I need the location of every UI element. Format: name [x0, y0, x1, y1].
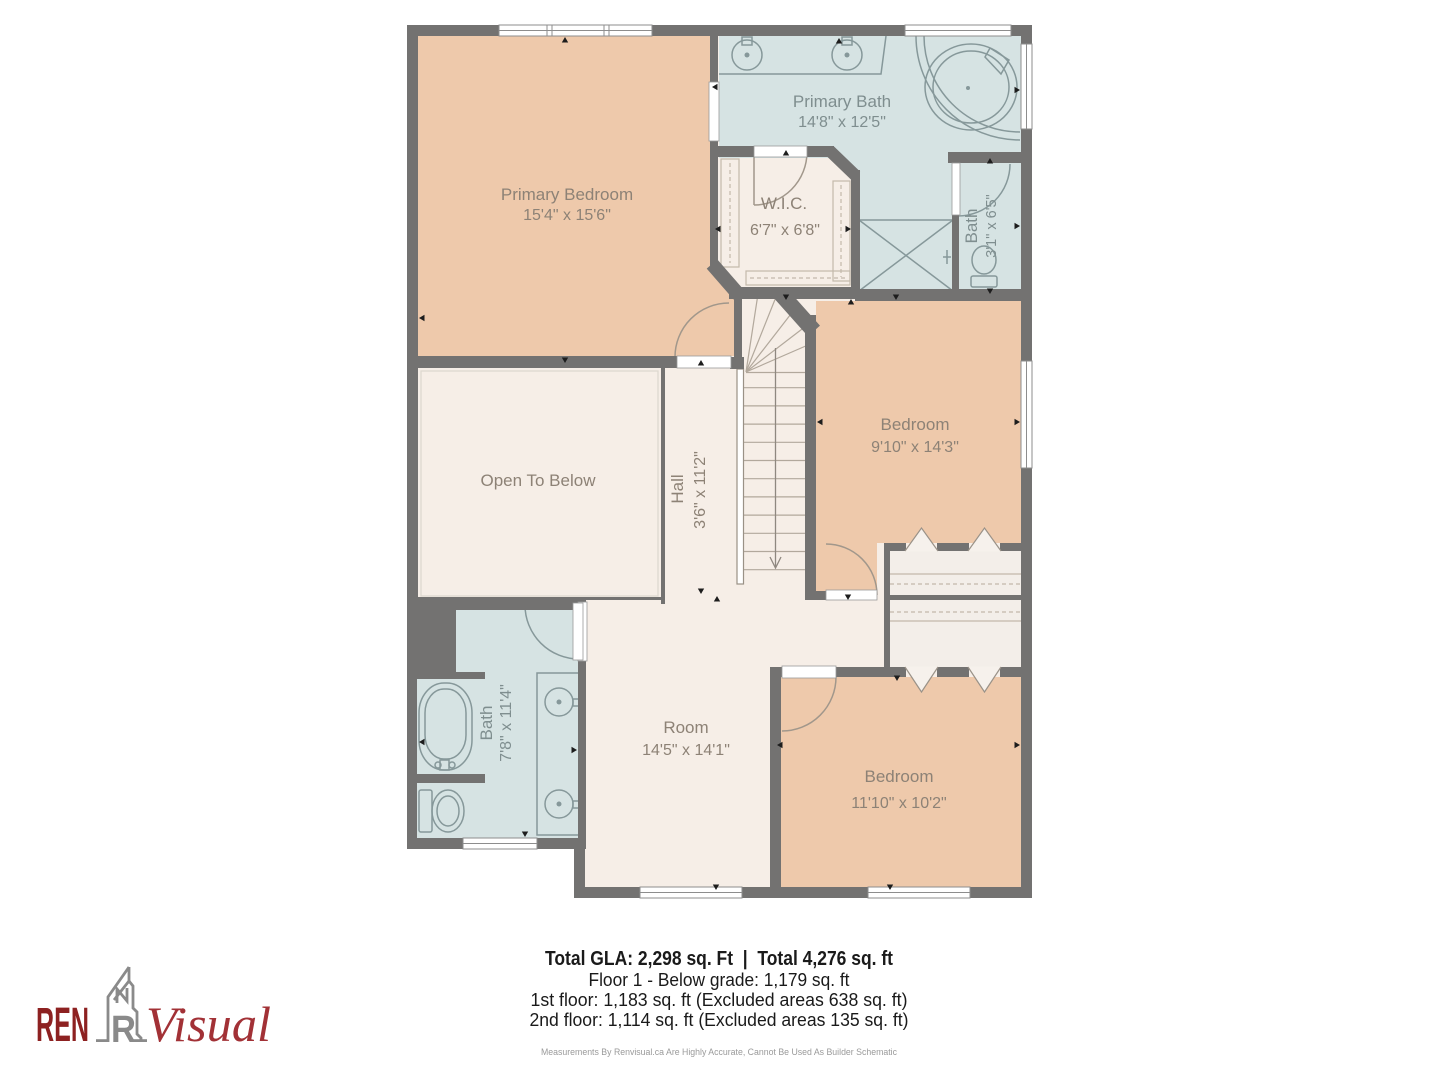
- svg-text:Bedroom: Bedroom: [881, 415, 950, 434]
- svg-text:11'10" x 10'2": 11'10" x 10'2": [851, 795, 946, 812]
- svg-text:Open To Below: Open To Below: [481, 471, 597, 490]
- svg-text:9'10" x 14'3": 9'10" x 14'3": [871, 439, 959, 456]
- svg-text:7'8" x 11'4": 7'8" x 11'4": [498, 684, 515, 762]
- svg-text:Floor 1 - Below grade: 1,179 s: Floor 1 - Below grade: 1,179 sq. ft: [589, 969, 850, 990]
- svg-text:Bath: Bath: [477, 706, 496, 741]
- svg-text:Total GLA: 2,298 sq. Ft | To: Total GLA: 2,298 sq. Ft | Total 4,276 sq…: [545, 948, 893, 970]
- svg-text:14'8" x 12'5": 14'8" x 12'5": [798, 114, 886, 131]
- svg-text:15'4" x 15'6": 15'4" x 15'6": [523, 207, 611, 224]
- svg-text:Bedroom: Bedroom: [865, 767, 934, 786]
- svg-text:W.I.C.: W.I.C.: [761, 194, 807, 213]
- svg-text:2nd floor: 1,114 sq. ft (Exclu: 2nd floor: 1,114 sq. ft (Excluded areas …: [530, 1009, 909, 1030]
- svg-text:14'5" x 14'1": 14'5" x 14'1": [642, 742, 730, 759]
- svg-text:Primary Bedroom: Primary Bedroom: [501, 185, 633, 204]
- svg-text:Bath: Bath: [962, 209, 981, 244]
- svg-text:3'1" x 6'5": 3'1" x 6'5": [984, 194, 1000, 257]
- svg-text:REN: REN: [36, 999, 89, 1052]
- svg-text:Primary Bath: Primary Bath: [793, 92, 891, 111]
- svg-text:Room: Room: [663, 718, 708, 737]
- svg-text:3'6" x 11'2": 3'6" x 11'2": [692, 451, 709, 529]
- svg-text:Visual: Visual: [146, 996, 271, 1052]
- svg-text:6'7" x 6'8": 6'7" x 6'8": [750, 222, 820, 239]
- svg-text:R: R: [111, 1009, 136, 1051]
- svg-text:1st floor: 1,183 sq. ft (Exclu: 1st floor: 1,183 sq. ft (Excluded areas …: [531, 989, 908, 1010]
- svg-text:Measurements By Renvisual.ca A: Measurements By Renvisual.ca Are Highly …: [541, 1047, 897, 1057]
- svg-text:Hall: Hall: [668, 474, 687, 503]
